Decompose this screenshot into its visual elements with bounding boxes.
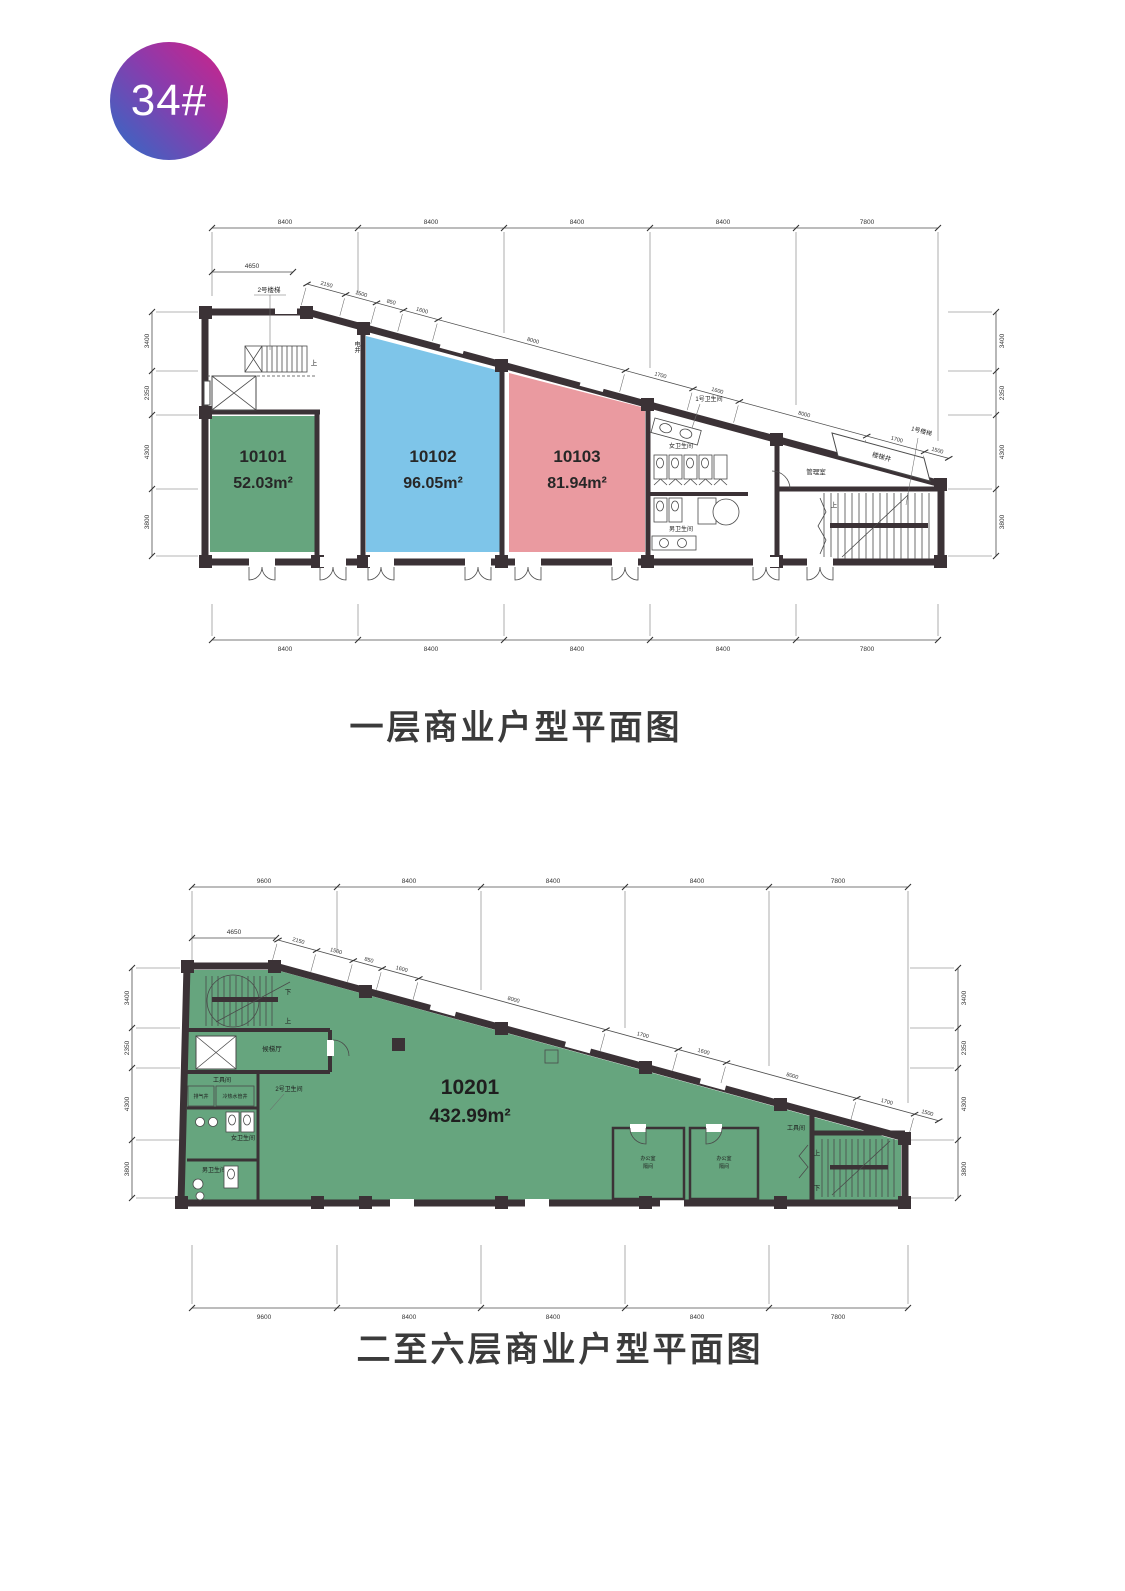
stair1-label: 1号楼梯	[910, 424, 933, 437]
plan1-title: 一层商业户型平面图	[350, 700, 683, 749]
stair2-label: 2号楼梯	[257, 285, 281, 294]
dim-label: 3800	[144, 514, 151, 529]
office1-label: 办公室	[640, 1155, 655, 1162]
unit-area: 96.05m²	[403, 475, 463, 492]
dim-label: 8400	[716, 219, 731, 226]
exhaust-label: 排气井	[193, 1093, 208, 1100]
dim-label: 7800	[860, 646, 875, 653]
dim-label: 8400	[690, 878, 705, 885]
up-label: 上	[831, 500, 838, 509]
dim-label: 8400	[424, 646, 439, 653]
plan1-stair2: 上 2号楼梯	[207, 285, 318, 376]
men-wc-label: 男卫生间	[202, 1166, 226, 1174]
dim-label: 8400	[716, 646, 731, 653]
dim-label: 7800	[831, 1314, 846, 1320]
up-label: 上	[311, 358, 318, 367]
dim-label: 8400	[402, 878, 417, 885]
dim-label: 2350	[124, 1040, 131, 1055]
dim-label: 2350	[144, 385, 151, 400]
page: 34# 8400 8400 8400 8400 7800 8400 8400 8…	[0, 0, 1125, 1591]
dim-label: 3800	[961, 1161, 968, 1176]
up-label: 上	[814, 1148, 821, 1157]
dim-label: 9600	[257, 1314, 272, 1320]
dim-label: 8400	[402, 1314, 417, 1320]
office2-label: 办公室	[716, 1155, 731, 1162]
dim-label: 8400	[278, 646, 293, 653]
dim-label: 8400	[546, 1314, 561, 1320]
plan1-elevator	[204, 376, 256, 410]
unit-id: 10103	[553, 447, 600, 466]
dim-label: 8400	[546, 878, 561, 885]
dim-label: 3400	[144, 333, 151, 348]
plan1-bathrooms: 女卫生间 男卫生间 1号卫生间	[651, 395, 739, 550]
dim-label: 8400	[570, 646, 585, 653]
men-stalls	[652, 498, 739, 550]
first-floor-plan: 8400 8400 8400 8400 7800 8400 8400 8400 …	[140, 200, 1020, 670]
dim-label: 4650	[245, 263, 260, 270]
plan2-dim-right: 3400 2350 4300 3800	[910, 965, 968, 1201]
office2-label2: 隔间	[719, 1163, 729, 1170]
dim-label: 7800	[860, 219, 875, 226]
plan1-elec-shaft-label: 电井	[353, 340, 360, 354]
dim-label: 8400	[278, 219, 293, 226]
plan2-dim-4650: 4650	[189, 929, 279, 941]
dim-label: 2350	[999, 385, 1006, 400]
plan1-stair1: 上	[818, 493, 929, 559]
plan1-dim-bottom: 8400 8400 8400 8400 7800	[209, 604, 941, 653]
plan1-dim-4650: 4650	[209, 263, 296, 275]
plan1-management: 管理室 楼梯井 1号楼梯	[772, 424, 933, 505]
building-badge-label: 34#	[131, 76, 207, 126]
women-stalls	[654, 455, 727, 485]
dim-label: 4650	[227, 929, 242, 936]
dim-label: 8400	[570, 219, 585, 226]
dim-label: 4300	[961, 1096, 968, 1111]
unit-id: 10102	[409, 447, 456, 466]
dim-label: 4300	[124, 1096, 131, 1111]
upper-floor-plan: 9600 8400 8400 8400 7800 9600 8400 8400 …	[105, 830, 1005, 1320]
plan2-title: 二至六层商业户型平面图	[357, 1322, 764, 1371]
water-label: 冷热水管井	[222, 1093, 247, 1100]
plan1-dim-left: 3400 2350 4300 3800	[144, 309, 198, 559]
svg-text:电井: 电井	[353, 340, 360, 354]
unit-id: 10101	[239, 447, 286, 466]
down-label: 下	[814, 1184, 821, 1192]
dim-label: 2350	[961, 1040, 968, 1055]
building-badge: 34#	[110, 42, 228, 160]
dim-label: 7800	[831, 878, 846, 885]
plan1-dim-right: 3400 2350 4300 3800	[948, 309, 1006, 559]
unit-area: 432.99m²	[429, 1106, 510, 1127]
wc2-label: 2号卫生间	[275, 1085, 302, 1093]
office1-label2: 隔间	[643, 1163, 653, 1170]
unit-10101: 10101 52.03m²	[210, 416, 317, 552]
dim-label: 3800	[999, 514, 1006, 529]
unit-id: 10201	[441, 1076, 500, 1099]
dim-label: 4300	[999, 444, 1006, 459]
plan2-dim-left: 3400 2350 4300 3800	[124, 965, 180, 1201]
unit-10201: 10201 432.99m²	[184, 970, 901, 1200]
dim-label: 8400	[690, 1314, 705, 1320]
unit-10102: 10102 96.05m²	[366, 336, 500, 552]
dim-label: 3800	[124, 1161, 131, 1176]
down-label: 下	[285, 988, 292, 996]
women-wc-label: 女卫生间	[669, 442, 693, 450]
up-label: 上	[285, 1016, 292, 1025]
tool-right-label: 工具间	[787, 1124, 805, 1132]
tool-left-label: 工具间	[213, 1076, 231, 1084]
dim-label: 3400	[124, 990, 131, 1005]
lobby-label: 候梯厅	[262, 1044, 282, 1053]
wc1-label: 1号卫生间	[695, 395, 722, 403]
dim-label: 9600	[257, 878, 272, 885]
unit-area: 52.03m²	[233, 475, 293, 492]
dim-label: 4300	[144, 444, 151, 459]
men-wc-label: 男卫生间	[669, 525, 693, 533]
dim-label: 3400	[999, 333, 1006, 348]
plan2-dim-bottom: 9600 8400 8400 8400 7800	[189, 1245, 911, 1320]
unit-area: 81.94m²	[547, 475, 607, 492]
dim-label: 3400	[961, 990, 968, 1005]
women-wc-label: 女卫生间	[231, 1134, 255, 1142]
dim-label: 8400	[424, 219, 439, 226]
mgmt-label: 管理室	[806, 467, 826, 476]
